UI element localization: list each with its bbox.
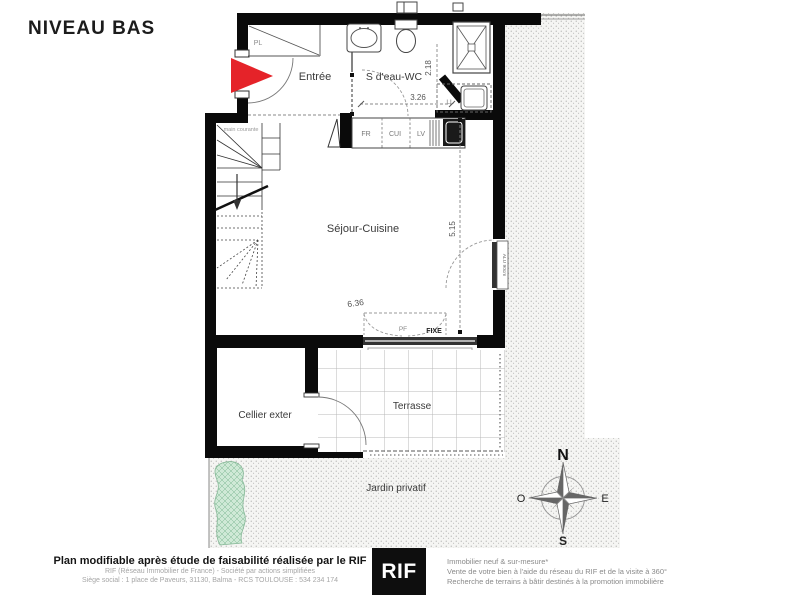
compass-n: N: [557, 447, 569, 464]
window-alu-label: ALU 90cm: [501, 254, 507, 276]
dim-bath-depth: 2.18: [424, 60, 433, 76]
room-label-cellier: Cellier exter: [238, 410, 292, 421]
room-label-entree: Entrée: [299, 71, 331, 83]
footer-service-3: Recherche de terrains à bâtir destinés à…: [447, 577, 667, 587]
handrail-label: main courante: [224, 127, 259, 133]
footer-services-block: Immobilier neuf & sur-mesure* Vente de v…: [447, 557, 667, 587]
wall-diagonal: [442, 77, 462, 101]
rif-logo: RIF: [372, 548, 426, 595]
sejour-dimension: [458, 118, 462, 334]
fixture-label-fr: FR: [361, 131, 370, 138]
floor-plan-page: NIVEAU BAS: [0, 0, 800, 600]
staircase: [215, 123, 280, 288]
footer: Plan modifiable après étude de faisabili…: [0, 548, 800, 600]
floor-plan-drawing: PL Entrée: [0, 0, 800, 548]
dim-sejour-height: 5.15: [448, 221, 457, 237]
window-alu: [446, 239, 508, 290]
dim-bath-width: 3.26: [410, 93, 426, 102]
entry-arrow-icon: [231, 58, 273, 93]
stair-arrow: [233, 200, 241, 210]
closet-label: PL: [254, 40, 263, 47]
compass-s: S: [559, 534, 567, 548]
room-label-jardin: Jardin privatif: [366, 483, 426, 494]
bay-label-fixe: FIXE: [426, 328, 442, 335]
compass-e: E: [601, 493, 608, 505]
footer-service-1: Immobilier neuf & sur-mesure*: [447, 557, 667, 567]
footer-address-line: Siège social : 1 place de Paveurs, 31130…: [50, 576, 370, 585]
footer-service-2: Vente de votre bien à l'aide du réseau d…: [447, 567, 667, 577]
footer-legal-block: Plan modifiable après étude de faisabili…: [50, 555, 370, 585]
dim-sejour-width: 6.36: [347, 297, 365, 309]
bay-label-pf: PF: [399, 326, 407, 333]
garden-hedge: [215, 462, 246, 545]
footer-headline: Plan modifiable après étude de faisabili…: [50, 555, 370, 567]
fixture-label-lv: LV: [417, 131, 425, 138]
plan-level-title: NIVEAU BAS: [28, 18, 155, 40]
compass-o: O: [517, 493, 526, 505]
room-label-terrasse: Terrasse: [393, 401, 432, 412]
footer-company-line: RIF (Réseau Immobilier de France) - Soci…: [50, 567, 370, 576]
room-label-bain: S d'eau-WC: [366, 71, 423, 83]
top-fixtures: [397, 2, 463, 13]
room-label-sejour: Séjour-Cuisine: [327, 223, 399, 235]
fixture-label-cui: CUI: [389, 131, 401, 138]
